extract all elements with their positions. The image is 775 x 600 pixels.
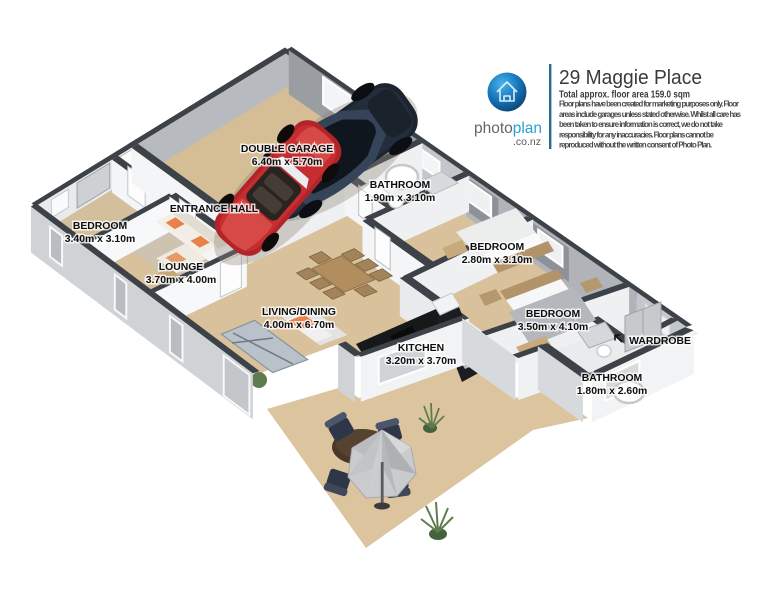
svg-text:3.40m x 3.10m: 3.40m x 3.10m [65, 234, 135, 245]
svg-text:3.70m x 4.00m: 3.70m x 4.00m [146, 275, 216, 286]
svg-text:3.20m x 3.70m: 3.20m x 3.70m [386, 356, 456, 367]
svg-text:4.00m x 6.70m: 4.00m x 6.70m [264, 320, 334, 331]
svg-text:responsibility for any inaccur: responsibility for any inaccuracies. Flo… [559, 130, 715, 139]
svg-text:photoplan: photoplan [474, 120, 542, 137]
svg-text:29 Maggie Place: 29 Maggie Place [559, 67, 702, 89]
svg-text:LIVING/DINING: LIVING/DINING [262, 307, 336, 318]
svg-text:been taken to ensure informati: been taken to ensure information is corr… [559, 120, 724, 129]
svg-text:2.80m x 3.10m: 2.80m x 3.10m [462, 255, 532, 266]
svg-text:BATHROOM: BATHROOM [370, 180, 430, 191]
svg-text:BEDROOM: BEDROOM [73, 221, 127, 232]
svg-text:BEDROOM: BEDROOM [470, 242, 524, 253]
svg-text:1.90m x 3.10m: 1.90m x 3.10m [365, 193, 435, 204]
svg-text:6.40m x 5.70m: 6.40m x 5.70m [252, 157, 322, 168]
svg-text:.co.nz: .co.nz [513, 136, 541, 148]
svg-text:BATHROOM: BATHROOM [582, 373, 642, 384]
svg-text:WARDROBE: WARDROBE [629, 336, 691, 347]
svg-text:BEDROOM: BEDROOM [526, 309, 580, 320]
svg-text:1.80m x 2.60m: 1.80m x 2.60m [577, 386, 647, 397]
svg-text:ENTRANCE HALL: ENTRANCE HALL [170, 204, 259, 215]
svg-text:reproduced without the written: reproduced without the written consent o… [559, 141, 712, 150]
svg-text:3.50m x 4.10m: 3.50m x 4.10m [518, 322, 588, 333]
svg-text:KITCHEN: KITCHEN [398, 343, 444, 354]
svg-text:Floor plans have been created: Floor plans have been created for market… [559, 100, 739, 109]
svg-text:areas include garages unless s: areas include garages unless stated othe… [559, 110, 742, 119]
svg-text:LOUNGE: LOUNGE [159, 262, 204, 273]
svg-text:DOUBLE GARAGE: DOUBLE GARAGE [241, 144, 333, 155]
